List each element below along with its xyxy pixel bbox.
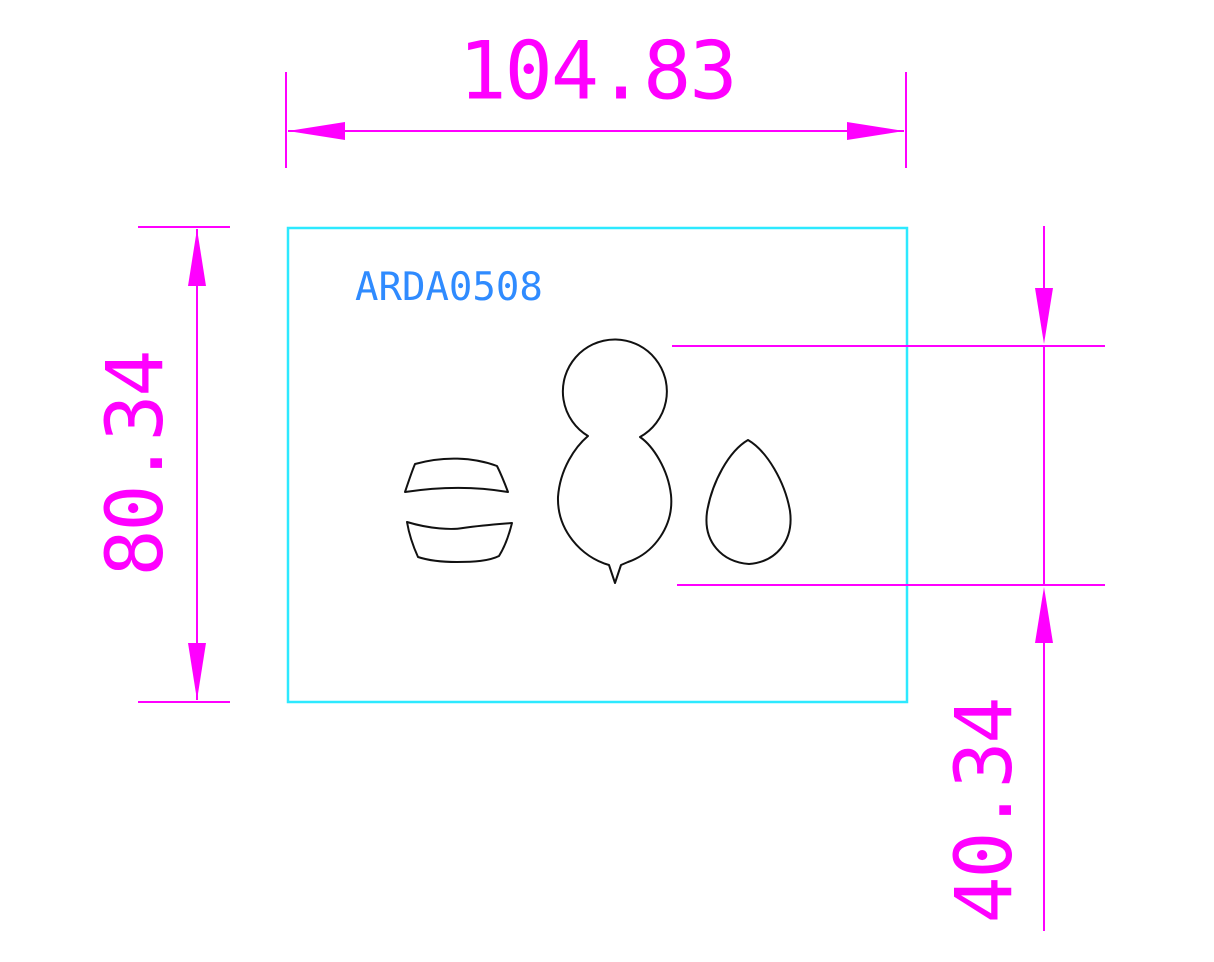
arrowhead-up-icon: [188, 229, 206, 286]
cad-drawing-sheet: 104.83 80.34 ARDA0508: [0, 0, 1214, 962]
arrowhead-down-icon: [1035, 288, 1053, 344]
arrowhead-up-icon: [1035, 587, 1053, 643]
arrowhead-down-icon: [188, 643, 206, 700]
dimension-overall-width: 104.83: [286, 25, 906, 169]
arrowhead-right-icon: [847, 122, 904, 140]
dimension-width-value: 104.83: [459, 25, 736, 118]
dimension-feature-height-value: 40.34: [940, 699, 1030, 924]
arrowhead-left-icon: [288, 122, 345, 140]
barrel-top-blank-shape: [405, 459, 508, 492]
dimension-height-value: 80.34: [91, 352, 181, 577]
barrel-bottom-blank-shape: [407, 522, 512, 562]
snowman-blank-shape: [558, 339, 671, 583]
cad-drawing-canvas: 104.83 80.34 ARDA0508: [0, 0, 1214, 962]
dimension-overall-height: 80.34: [91, 227, 230, 702]
cut-geometry: [405, 339, 791, 583]
egg-blank-shape: [706, 440, 790, 564]
part-label-text: ARDA0508: [355, 265, 543, 310]
dimension-feature-height: 40.34: [672, 226, 1105, 931]
